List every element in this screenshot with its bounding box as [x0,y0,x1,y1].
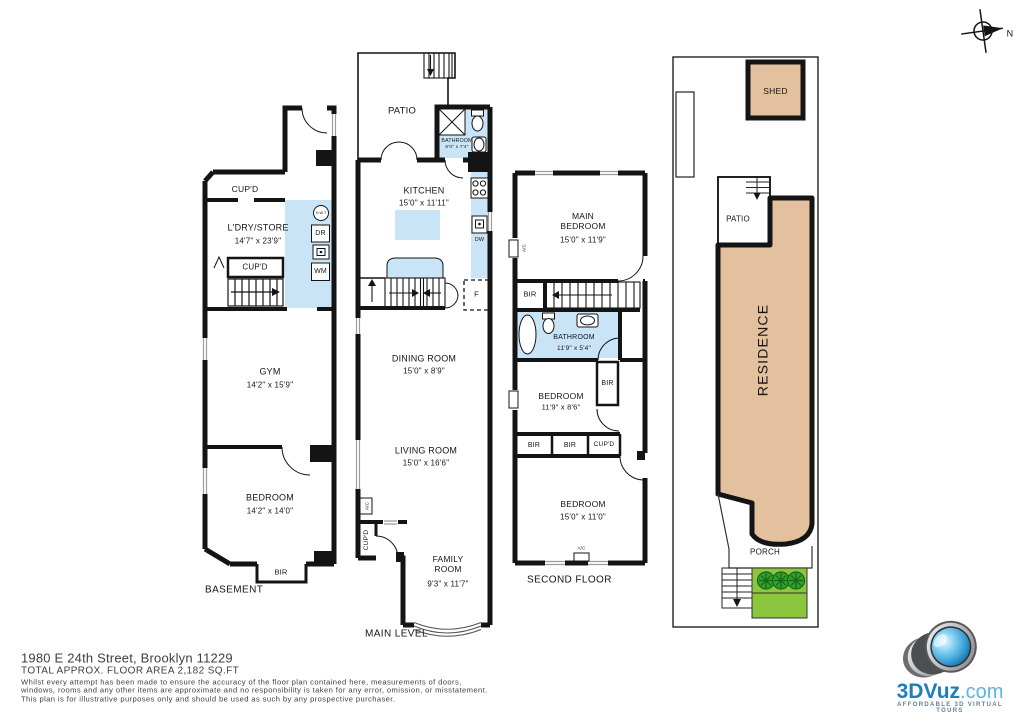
room-label-bir-mid: BIR [601,379,613,387]
dishwasher-label: DW [475,236,485,242]
stove-icon [471,178,488,198]
room-label-living: LIVING ROOM [395,446,457,457]
room-label-bir-row1: BIR [528,441,540,449]
dryer-label: DR [315,229,326,237]
room-label-cupd-second: CUP'D [594,441,615,449]
ac-label-second-lower: A/C [577,545,585,550]
room-label-main-bathroom: BATHROOM [441,137,472,143]
room-label-laundry-store: L'DRY/STORE [227,223,288,234]
room-label-family: FAMILY ROOM [421,554,475,574]
toilet-icon [472,110,484,131]
second-floor-stairs [546,282,640,308]
room-dim-kitchen: 15'0" x 11'11" [399,198,449,207]
room-dim-main-bathroom: 6'0" x 7'4" [445,145,468,151]
room-label-cupd-mid: CUP'D [242,262,267,271]
logo-wordmark: 3DVuz.com [885,681,1015,702]
room-label-cupd-top: CUP'D [232,184,259,194]
compass-icon [958,6,1006,55]
room-label-patio: PATIO [388,105,416,116]
room-dim-living: 15'0" x 16'6" [403,458,449,467]
washer-label: WM [314,268,327,276]
porch-stairs [722,568,752,608]
ac-label-main: A/C [364,502,369,510]
bush-icons [758,572,805,589]
logo-brand-text: 3DVuz [897,680,960,703]
site-label-shed: SHED [763,85,787,95]
patio-stairs [424,53,452,78]
floor-label-second-floor: SECOND FLOOR [527,575,612,586]
floor-area-text: TOTAL APPROX. FLOOR AREA 2,182 SQ.FT [21,666,239,677]
room-label-cupd-main: CUP'D [363,530,371,551]
compass-north-label: N [1007,29,1014,40]
lens-logo-icon [895,614,983,687]
address-text: 1980 E 24th Street, Brooklyn 11229 [21,651,233,666]
floor-label-basement: BASEMENT [205,585,263,596]
site-label-patio: PATIO [726,214,750,223]
main-stairs [358,278,445,308]
room-label-bir-stairs: BIR [523,291,536,300]
floorplan-page: CUP'D L'DRY/STORE 14'7" x 23'9" CUP'D H.… [0,0,1024,724]
room-label-bir-row2: BIR [564,441,576,449]
site-label-porch: PORCH [750,547,780,556]
room-dim-bedroom-rear: 15'0" x 11'0" [560,512,606,521]
fridge-label: F [474,291,479,300]
stair-bulkhead [387,258,443,278]
room-label-main-bedroom: MAIN BEDROOM [550,211,616,231]
ac-label-second-upper: A/C [521,244,526,252]
sink-icon [472,137,486,152]
water-heater-label: H.W.T [316,211,327,215]
room-dim-gym: 14'2" x 15'9" [247,380,293,389]
ac-unit-icon [509,391,518,408]
logo-brand-suffix: .com [960,681,1003,703]
ac-unit-icon [574,553,589,561]
room-dim-basement-bedroom: 14'2" x 14'0" [247,506,293,515]
shower-icon [439,109,465,135]
kitchen-island [395,210,440,240]
room-dim-family: 9'3" x 11'7" [427,579,468,588]
room-dim-bedroom-mid: 11'9" x 8'6" [542,404,581,413]
floorplan-graphics [0,0,1024,724]
lawn [752,593,807,618]
disclaimer-line-3: This plan is for illustrative purposes o… [21,694,395,703]
site-plan [673,57,818,627]
room-dim-dining: 15'0" x 8'9" [403,366,445,375]
bathtub-icon [519,315,536,354]
room-label-second-bathroom: BATHROOM [553,334,595,342]
room-label-basement-bir: BIR [274,568,287,577]
dishwasher-icon [472,216,487,233]
logo-tagline: AFFORDABLE 3D VIRTUAL TOURS [885,702,1015,714]
floor-label-main-level: MAIN LEVEL [365,629,428,640]
room-dim-main-bedroom: 15'0" x 11'9" [560,235,606,244]
toilet-icon [543,313,555,334]
room-label-dining: DINING ROOM [392,354,456,365]
room-dim-laundry-store: 14'7" x 23'9" [235,236,281,245]
site-label-residence: RESIDENCE [755,304,772,396]
ac-unit-icon [509,240,518,257]
room-label-basement-bedroom: BEDROOM [246,493,294,504]
sink-icon [577,314,598,327]
room-label-bedroom-rear: BEDROOM [560,499,605,509]
room-label-kitchen: KITCHEN [404,186,445,197]
laundry-sink-icon [313,245,329,259]
room-label-gym: GYM [259,367,280,378]
site-patio-stairs [746,178,770,200]
room-label-bedroom-mid: BEDROOM [538,391,583,401]
room-dim-second-bathroom: 11'9" x 5'4" [557,345,591,353]
